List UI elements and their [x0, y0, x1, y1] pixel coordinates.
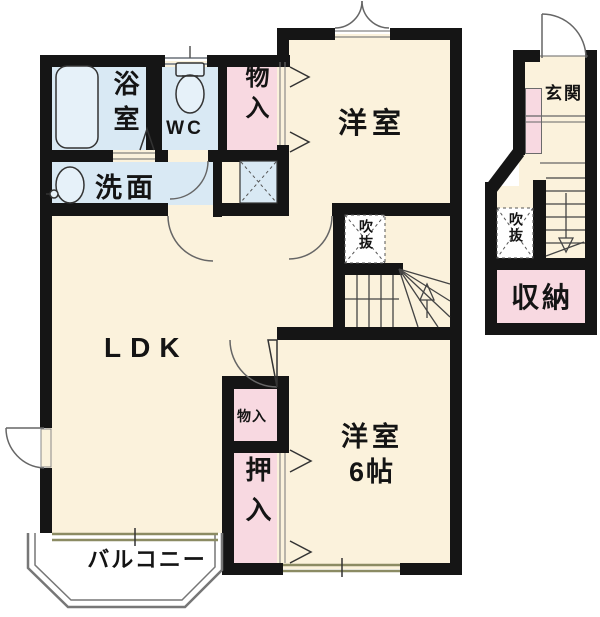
wall-bedroom1-left-1	[277, 28, 289, 62]
wc-label: WC	[160, 118, 210, 140]
floor-plan: 浴室 WC 物入 洋室 洗面 吹抜 LDK 物入 押入 洋室 6帖 バルコニー …	[0, 0, 600, 617]
void-lower-label: 吹抜	[506, 212, 526, 244]
wall-storage-mid-right	[277, 376, 289, 453]
wall-bedroom1-left-2	[277, 145, 289, 203]
storage-mid-label: 物入	[227, 406, 277, 426]
wall-entry-bottom	[485, 323, 597, 335]
wall-right	[450, 28, 462, 575]
bedroom1-double-door	[335, 1, 390, 37]
entrance-label: 玄関	[538, 79, 590, 104]
balcony-label: バルコニー	[62, 542, 232, 574]
wall-bottom-2	[400, 563, 462, 575]
wall-bedroom1-bottom	[332, 203, 462, 216]
wall-left-upper	[40, 55, 52, 428]
wall-void1f-right	[533, 180, 546, 270]
entrance-door	[540, 14, 588, 58]
wall-bedroom1-top-1	[284, 28, 335, 40]
wall-bath-bottom-2	[155, 150, 168, 162]
wall-entry-left-upper	[513, 50, 525, 155]
bedroom2-name-label: 洋室	[312, 415, 432, 454]
closet-label: 押入	[239, 456, 276, 536]
storage-top-label: 物入	[237, 64, 272, 126]
wall-bedroom2-top	[277, 327, 462, 340]
ldk-label: LDK	[104, 332, 189, 364]
bath-label: 浴室	[107, 70, 144, 140]
wall-bath-bottom-1	[40, 150, 113, 162]
washroom-label: 洗面	[84, 166, 168, 205]
bedroom2-size-label: 6帖	[312, 450, 432, 489]
bedroom1-label: 洋室	[312, 100, 432, 142]
wall-wc-storage-divider	[218, 55, 227, 150]
void-upper-label: 吹抜	[356, 219, 376, 251]
wall-left-lower	[40, 468, 52, 533]
ldk-exterior-door	[6, 428, 51, 468]
storage-entrance-label: 収納	[494, 276, 590, 316]
wall-ldk-top-2	[213, 203, 289, 216]
wall-void-bottom	[333, 263, 403, 275]
